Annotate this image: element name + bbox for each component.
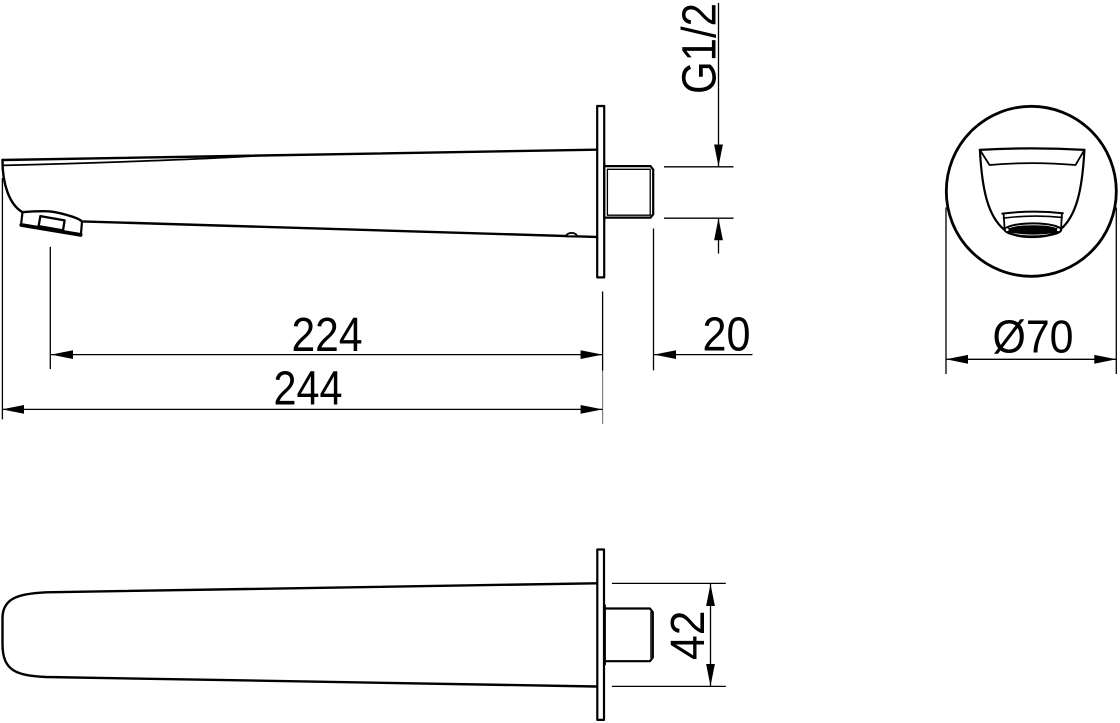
svg-text:Ø70: Ø70 xyxy=(993,311,1074,363)
svg-text:42: 42 xyxy=(661,611,715,661)
svg-text:244: 244 xyxy=(274,362,343,416)
svg-text:224: 224 xyxy=(292,308,363,362)
svg-text:G1/2: G1/2 xyxy=(672,3,726,94)
svg-text:20: 20 xyxy=(703,308,751,362)
